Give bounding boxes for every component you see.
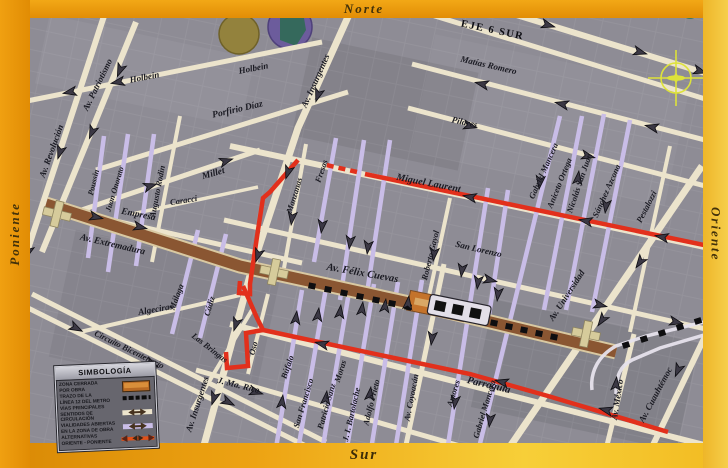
legend: SIMBOLOGÍA ZONA CERRADAPOR OBRA TRAZO DE… bbox=[54, 362, 159, 452]
east-label: Oriente bbox=[708, 207, 724, 261]
legend-swatch-metro bbox=[122, 395, 150, 401]
west-label: Poniente bbox=[7, 202, 23, 266]
legend-rows: ZONA CERRADAPOR OBRA TRAZO DE LALÍNEA 12… bbox=[56, 377, 158, 451]
north-label: Norte bbox=[344, 1, 384, 17]
legend-swatch-open-roads bbox=[122, 421, 152, 431]
border-north: Norte bbox=[0, 0, 728, 18]
map-page: EJE 6 SURMatías RomeroPilaresMiguel Laur… bbox=[0, 0, 728, 468]
legend-swatch-closed-zone bbox=[121, 380, 149, 392]
legend-swatch-alternatives bbox=[121, 433, 154, 443]
bullring-landmark bbox=[219, 14, 259, 54]
south-label: Sur bbox=[350, 447, 379, 464]
border-west: Poniente bbox=[0, 0, 30, 468]
border-east: Oriente bbox=[703, 0, 728, 468]
legend-swatch-main-roads bbox=[122, 407, 152, 417]
